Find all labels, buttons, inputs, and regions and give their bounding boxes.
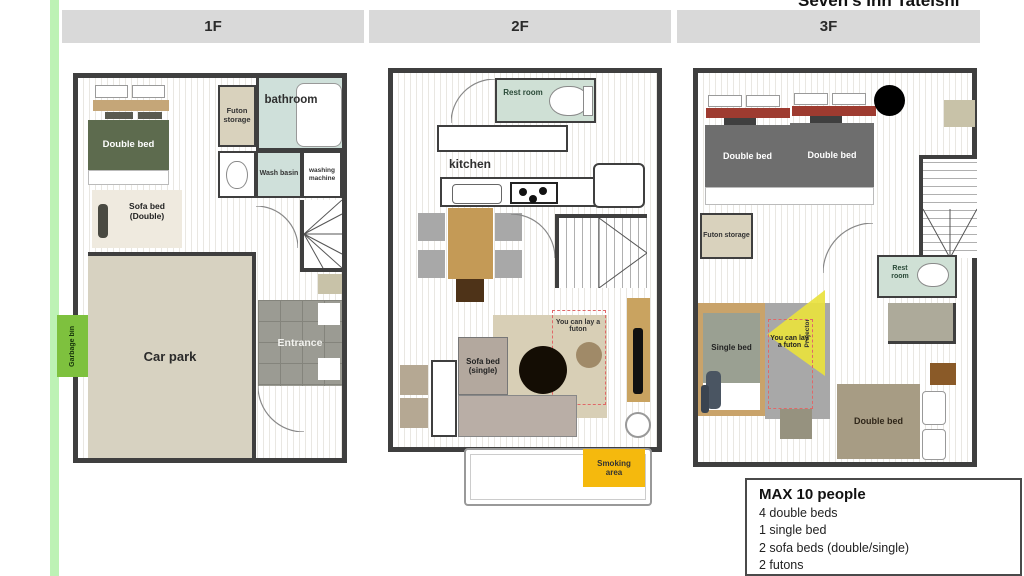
storage-square-gray [780,409,812,439]
capacity-line: 2 futons [759,557,1008,574]
double-bed-3f-bottom: Double bed [837,384,920,459]
stove-icon [510,182,558,204]
bathroom-1f: bathroom [256,78,342,151]
dining-chair [418,250,445,278]
double-bed-3f-left: Double bed [705,125,790,187]
door-arc [511,214,555,258]
floor-header-2f: 2F [369,10,671,43]
dining-table [448,208,493,279]
kitchen-label: kitchen [449,157,491,171]
burner-icon [539,187,547,195]
capacity-info-box: MAX 10 people 4 double beds 1 single bed… [745,478,1022,576]
rest-room-label: Rest room [502,88,544,97]
sofa-bed-label-1f: Sofa bed (Double) [112,196,182,228]
floor-header-3f: 3F [677,10,980,43]
sink-icon [452,184,502,204]
sofa-bed-base [458,395,577,437]
storage-square [318,274,342,294]
door-arc [258,386,304,432]
kitchen-counter-bottom [440,177,597,207]
toilet-room-1f [218,151,256,198]
double-bed-3f-right: Double bed [790,123,874,187]
entrance-step [318,358,340,380]
stairs-3f [919,155,977,258]
toilet-icon [226,161,248,189]
dining-chair-dark [456,279,484,302]
brown-cabinet [930,363,956,385]
plan-2f: Rest room kitchen [388,68,662,452]
rest-room-2f: Rest room [495,78,596,123]
bed-pillow [132,85,165,98]
stool-2f [625,412,651,438]
closet-2f [593,163,645,208]
burner-icon [529,195,537,203]
bed-pillow [832,93,866,105]
stairs-2f [555,214,647,288]
bed-blanket-strip [93,100,169,111]
bed-blanket-strip [706,108,790,118]
storage-square [944,100,975,127]
bed-blanket-strip [810,116,842,123]
futon-storage-3f: Futon storage [700,213,753,259]
bed-blanket-strip [105,112,133,119]
burner-icon [519,188,527,196]
futon-note-3f: You can lay a futon [769,335,810,349]
garbage-bin-tag: Garbage bin [57,315,88,377]
smoking-area-2f: Smoking area [583,449,645,487]
double-bed-1f: Double bed [88,120,169,170]
sofa-bed-2f: Sofa bed (single) [458,337,508,395]
bed-blanket-strip [792,106,876,116]
futon-note-2f: You can lay a futon [554,319,602,333]
entrance-step [318,303,340,325]
kitchen-counter-top [437,125,568,152]
toilet-tank [583,86,593,116]
rest-room-label: Rest room [883,265,917,281]
dining-chair [418,213,445,241]
chair-dark [701,385,709,413]
left-green-stripe [50,0,59,576]
side-chair [400,398,428,428]
door-arc [823,223,873,273]
plan-1f: Double bed Sofa bed (Double) Futon stora… [73,73,347,463]
spiral-stairs-1f [300,200,342,272]
entrance-label: Entrance [278,337,323,349]
futon-outline-3f [768,319,813,409]
bed-pillow [746,95,780,107]
plan-3f: Double bed Double bed Futon storage Rest… [693,68,977,467]
bed-blanket-strip [724,118,756,125]
futon-cushion [576,342,602,368]
door-arc [451,79,495,123]
toilet-icon [917,263,949,287]
bed-pillow [95,85,128,98]
side-table [431,360,457,437]
capacity-line: 1 single bed [759,522,1008,539]
floor-header-1f: 1F [62,10,364,43]
capacity-line: 2 sofa beds (double/single) [759,540,1008,557]
smoking-area-label: Smoking area [589,459,639,477]
door-arc [256,206,298,248]
round-table-3f [874,85,905,116]
round-table-2f [519,346,567,394]
bench-white [922,391,946,425]
entrance-1f: Entrance [258,300,342,386]
bathtub-icon [296,83,342,147]
side-chair [400,365,428,395]
wash-basin-1f: Wash basin [256,151,302,198]
capacity-line: 4 double beds [759,505,1008,522]
washing-machine-1f: washing machine [302,151,342,198]
futon-storage-1f: Futon storage [218,85,256,147]
bed-blanket-strip [138,112,162,119]
bench-white [922,429,946,460]
sofa-icon [98,204,108,238]
bed-sheet [88,170,169,185]
rest-room-3f: Rest room [877,255,957,298]
floorplan-sheet: Seven's Inn Tateishi 1F 2F 3F Double bed… [0,0,1024,576]
car-park-1f: Car park [88,252,256,458]
capacity-title: MAX 10 people [759,486,1008,503]
garbage-bin-label: Garbage bin [69,326,76,367]
closet-3f [888,303,956,344]
bed-sheet [705,187,874,205]
tv-icon [633,328,643,394]
bed-pillow [708,95,742,107]
bed-pillow [794,93,828,105]
bathroom-label: bathroom [261,94,321,107]
